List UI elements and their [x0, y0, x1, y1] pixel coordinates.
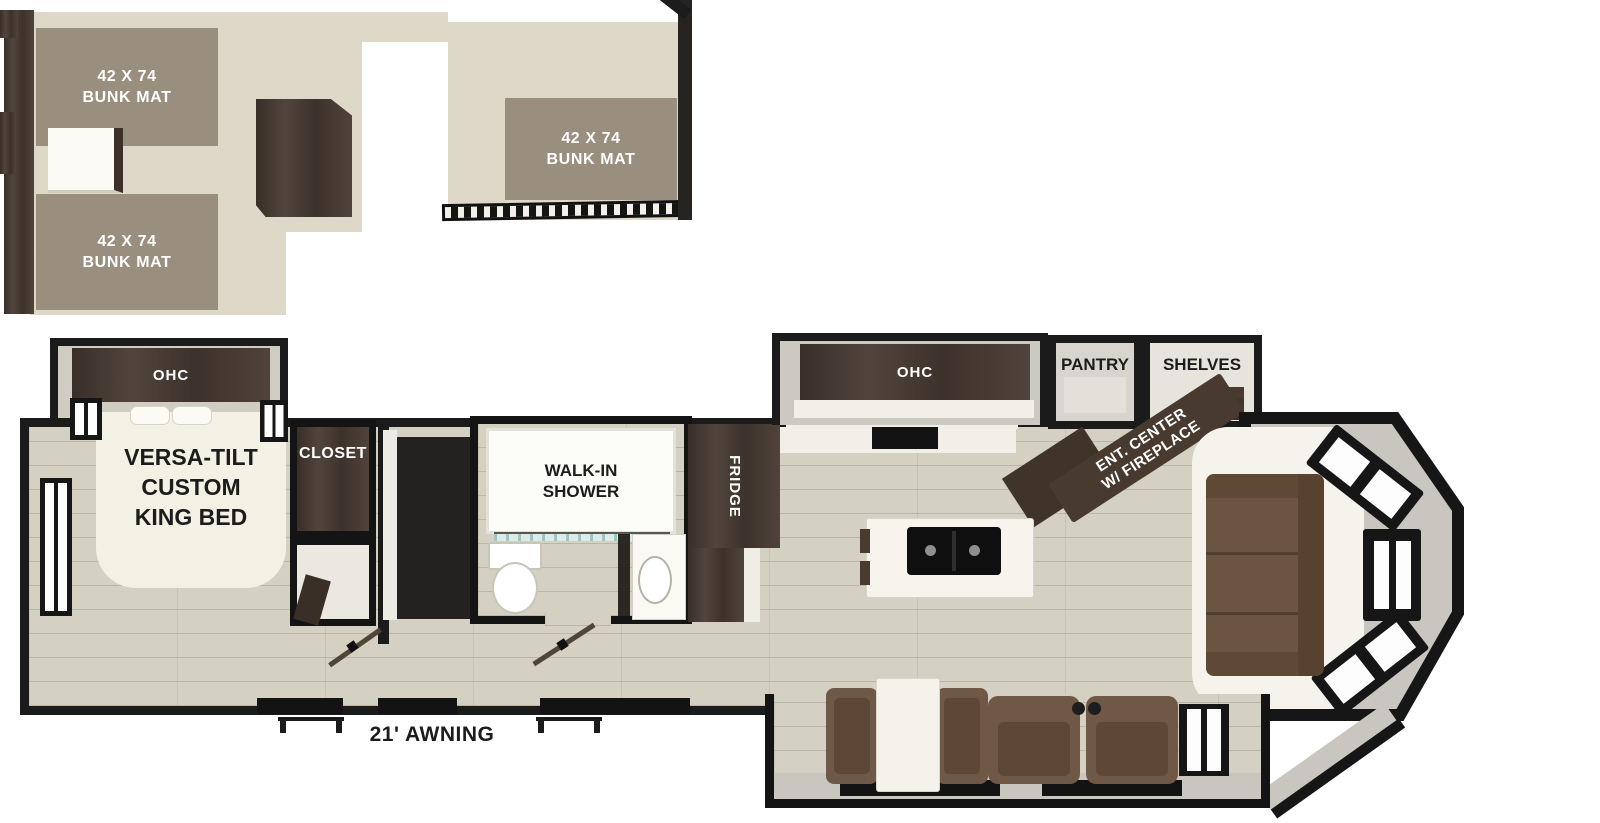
- bunk-mat-2: 42 X 74 BUNK MAT: [36, 194, 218, 310]
- rv-floorplan: 42 X 74 BUNK MAT 42 X 74 BUNK MAT 42 X 7…: [0, 0, 1600, 823]
- sofa-arm-top: [1206, 474, 1298, 498]
- awning-label: 21' AWNING: [352, 723, 512, 747]
- bathroom-door-opening: [545, 612, 611, 626]
- bathroom-divider: [618, 534, 630, 616]
- theater-seat-left-cushion: [998, 722, 1070, 776]
- theater-seating: [988, 696, 1178, 784]
- fridge: FRIDGE: [688, 424, 780, 548]
- bottom-wall-window-1: [257, 698, 343, 714]
- dinette-chair-right: [936, 688, 988, 784]
- bunk-mat-2-size: 42 X 74: [97, 231, 156, 252]
- slideout-end-window: [1179, 704, 1229, 776]
- sofa-backrest: [1298, 474, 1324, 676]
- bedroom-ohc-label: OHC: [153, 367, 189, 384]
- fridge-counter-edge: [744, 548, 760, 622]
- faucet-right: [969, 545, 980, 556]
- fridge-cabinet-lower: [688, 548, 744, 622]
- closet-niche-door: [293, 574, 331, 625]
- shower-label-2: SHOWER: [543, 481, 620, 502]
- kitchen-ohc: OHC: [800, 344, 1030, 400]
- kitchen-island: [866, 518, 1034, 598]
- shelves-label: SHELVES: [1150, 355, 1254, 375]
- bunk-mat-3-label: BUNK MAT: [547, 149, 636, 170]
- slide-transition-wall-gray: [1266, 714, 1392, 803]
- cooktop: [872, 427, 938, 449]
- loft-left-wall-top: [0, 10, 18, 38]
- closet: CLOSET: [290, 420, 376, 538]
- theater-seat-right-cushion: [1096, 722, 1168, 776]
- sofa: [1206, 474, 1324, 676]
- pantry-label: PANTRY: [1056, 355, 1134, 375]
- bunk-mat-1-size: 42 X 74: [97, 66, 156, 87]
- island-sink: [907, 527, 1001, 575]
- loft-right-wall: [678, 0, 692, 220]
- bay-window-middle: [1363, 529, 1421, 621]
- dinette-table: [876, 678, 940, 792]
- walk-in-shower: WALK-IN SHOWER: [486, 428, 676, 534]
- dinette-chair-right-seat: [944, 698, 980, 774]
- loft-left-wall-bump: [0, 112, 16, 174]
- awning-bracket-right: [536, 717, 602, 734]
- bunk-mat-3: 42 X 74 BUNK MAT: [505, 98, 677, 200]
- pantry-interior: [1064, 377, 1126, 413]
- fridge-label: FRIDGE: [725, 455, 742, 518]
- dinette-chair-left-seat: [834, 698, 870, 774]
- bathroom-sink: [638, 556, 672, 604]
- bed-label-3: KING BED: [135, 502, 247, 532]
- bedroom-window-right: [260, 400, 288, 442]
- cupholder-left: [1072, 702, 1085, 715]
- loft-cabinet: [256, 99, 352, 217]
- rear-wall-window: [40, 478, 72, 616]
- sink-divider: [952, 531, 956, 571]
- cupholder-right: [1088, 702, 1101, 715]
- loft-nightstand: [48, 128, 123, 193]
- bed-label-2: CUSTOM: [141, 472, 240, 502]
- bunk-mat-3-size: 42 X 74: [561, 128, 620, 149]
- faucet-left: [925, 545, 936, 556]
- wardrobe: [397, 437, 473, 619]
- bedroom-window-left: [70, 398, 102, 440]
- bed: VERSA-TILT CUSTOM KING BED: [96, 412, 286, 588]
- sofa-arm-bottom: [1206, 652, 1298, 676]
- loft-floor-strip: [362, 12, 448, 42]
- shower-label-1: WALK-IN: [545, 460, 618, 481]
- bunk-mat-1-label: BUNK MAT: [83, 87, 172, 108]
- sofa-seam-2: [1206, 612, 1298, 615]
- hall-wall-strip: [383, 430, 397, 620]
- awning-bracket-left: [278, 717, 344, 734]
- bedroom-ohc: OHC: [72, 348, 270, 402]
- sofa-seam-1: [1206, 552, 1298, 555]
- closet-label: CLOSET: [297, 445, 369, 463]
- pillow-left: [130, 406, 170, 425]
- bunk-mat-2-label: BUNK MAT: [83, 252, 172, 273]
- island-trim-2: [860, 561, 870, 585]
- kitchen-counter-slide: [794, 400, 1034, 418]
- bottom-wall-window-2: [378, 698, 457, 714]
- pantry: PANTRY: [1048, 335, 1142, 429]
- dinette-chair-left: [826, 688, 878, 784]
- toilet-bowl: [492, 562, 538, 614]
- pillow-right: [172, 406, 212, 425]
- island-trim-1: [860, 529, 870, 553]
- entry-door-opening: [540, 698, 690, 714]
- theater-seat-left: [988, 696, 1080, 784]
- closet-niche: [290, 538, 376, 626]
- bed-label-1: VERSA-TILT: [124, 442, 258, 472]
- kitchen-ohc-label: OHC: [897, 364, 933, 381]
